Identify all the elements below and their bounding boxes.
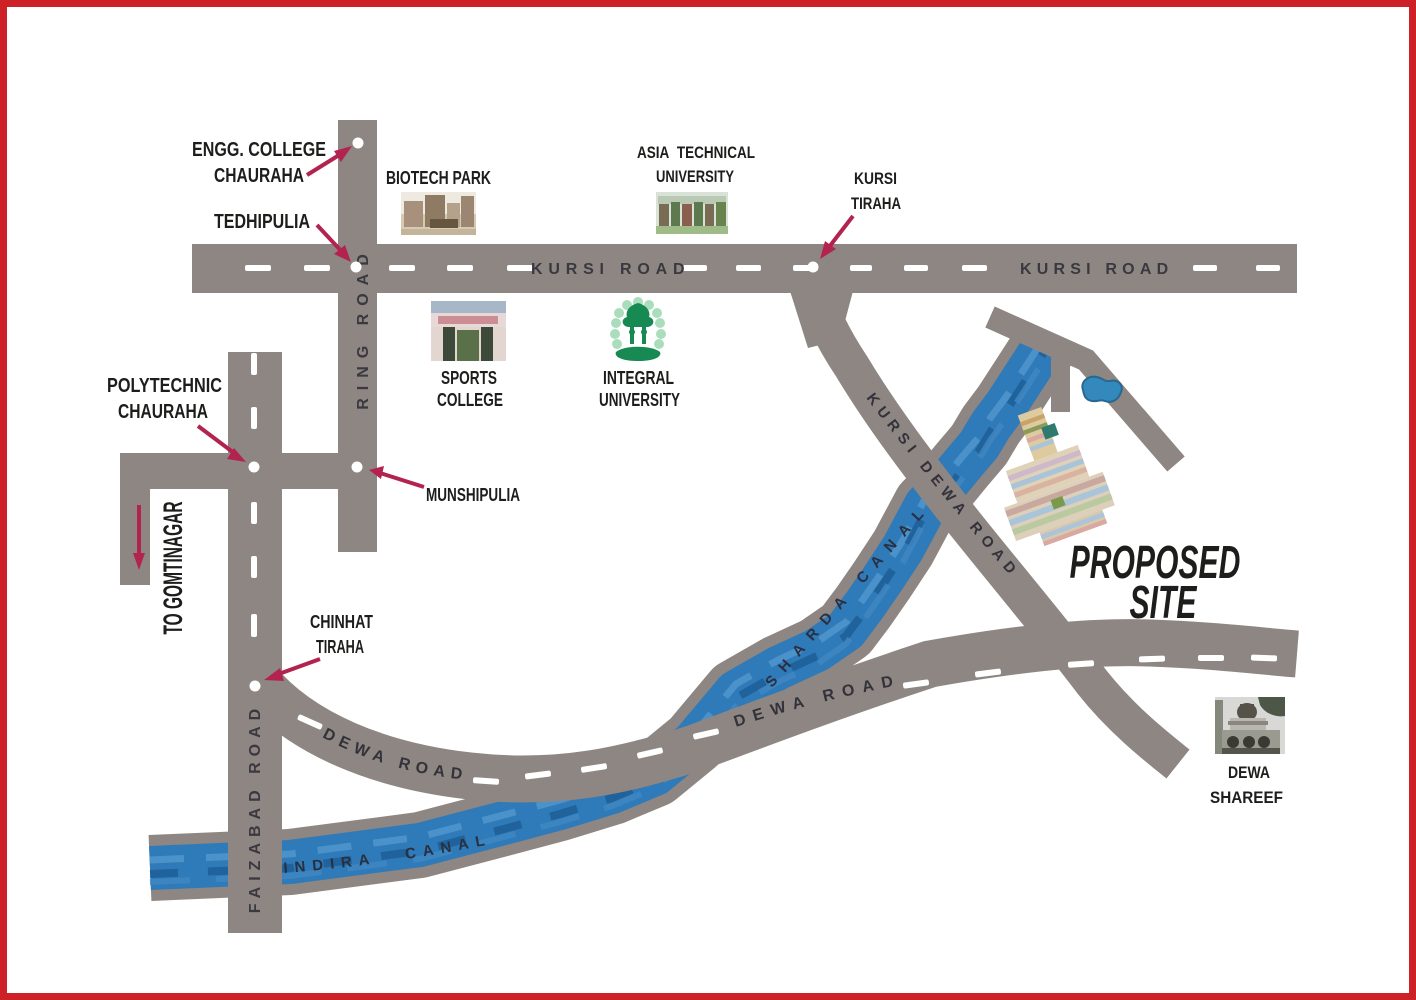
svg-text:DEWA: DEWA xyxy=(1228,763,1270,782)
svg-text:ENGG. COLLEGE: ENGG. COLLEGE xyxy=(192,139,326,161)
svg-text:BIOTECH PARK: BIOTECH PARK xyxy=(386,168,491,188)
svg-text:FAIZABAD ROAD: FAIZABAD ROAD xyxy=(247,703,264,913)
svg-text:UNIVERSITY: UNIVERSITY xyxy=(656,167,734,186)
svg-text:TIRAHA: TIRAHA xyxy=(316,637,364,657)
svg-text:CHAURAHA: CHAURAHA xyxy=(118,401,208,423)
svg-text:UNIVERSITY: UNIVERSITY xyxy=(599,390,680,410)
svg-text:INTEGRAL: INTEGRAL xyxy=(603,368,674,388)
svg-text:POLYTECHNIC: POLYTECHNIC xyxy=(107,375,222,397)
svg-text:ASIA TECHNICAL: ASIA TECHNICAL xyxy=(637,143,755,162)
svg-text:SITE: SITE xyxy=(1130,578,1198,629)
svg-text:TO GOMTINAGAR: TO GOMTINAGAR xyxy=(158,502,188,635)
svg-text:TEDHIPULIA: TEDHIPULIA xyxy=(214,211,310,233)
svg-text:CHINHAT: CHINHAT xyxy=(310,612,373,632)
svg-text:SHAREEF: SHAREEF xyxy=(1210,788,1283,807)
svg-text:TIRAHA: TIRAHA xyxy=(851,194,901,213)
svg-text:MUNSHIPULIA: MUNSHIPULIA xyxy=(426,485,520,505)
svg-text:COLLEGE: COLLEGE xyxy=(437,390,503,410)
svg-text:SPORTS: SPORTS xyxy=(441,368,497,388)
svg-text:KURSI ROAD: KURSI ROAD xyxy=(531,261,690,278)
svg-text:KURSI: KURSI xyxy=(854,169,897,188)
svg-text:KURSI ROAD: KURSI ROAD xyxy=(1020,261,1173,278)
svg-text:CHAURAHA: CHAURAHA xyxy=(214,165,304,187)
